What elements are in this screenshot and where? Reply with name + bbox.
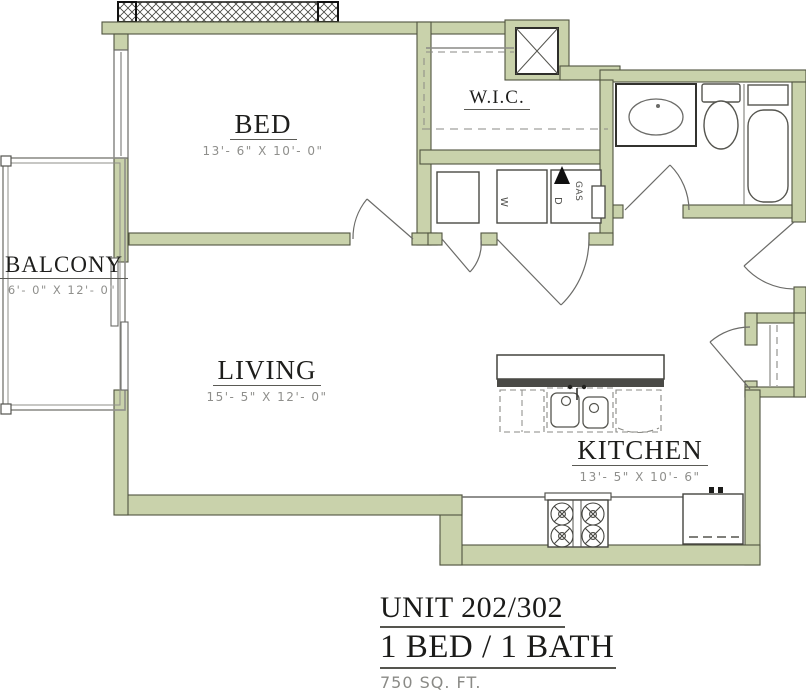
laundry-door-left [442, 239, 481, 272]
bed-room-dims: 13'- 6" X 10'- 0" [183, 144, 343, 158]
unit-number-line: UNIT 202/302 [380, 591, 616, 628]
toilet [702, 84, 740, 149]
kitchen-sink [547, 385, 613, 432]
living-room-dims: 15'- 5" X 12'- 0" [187, 390, 347, 404]
bathroom-door [625, 165, 689, 210]
water-heater-box [437, 172, 479, 223]
title-block: UNIT 202/302 1 BED / 1 BATH 750 SQ. FT. [380, 591, 616, 692]
balcony-room-dims: 6'- 0" X 12'- 0" [0, 283, 124, 297]
washer-label: W [498, 197, 509, 207]
dishwasher [616, 390, 661, 433]
dryer-label: D [552, 197, 563, 205]
vanity-sink [616, 84, 696, 146]
laundry-door-right [497, 239, 589, 305]
floor-plan: BED 13'- 6" X 10'- 0" W.I.C. BALCONY 6'-… [0, 0, 806, 697]
bathroom-niche [748, 85, 788, 105]
entry-closet [770, 325, 777, 386]
kitchen-room-dims: 13'- 5" X 10'- 6" [560, 470, 720, 484]
bed-bath-line: 1 BED / 1 BATH [380, 629, 616, 669]
bed-room-name: BED [230, 110, 297, 140]
balcony-room-label: BALCONY 6'- 0" X 12'- 0" [0, 253, 124, 297]
range [545, 493, 611, 547]
kitchen-room-name: KITCHEN [572, 436, 707, 466]
gas-label: GAS [573, 181, 583, 201]
entry-door [744, 222, 794, 289]
bed-window [114, 50, 128, 158]
wic-room-name: W.I.C. [464, 88, 529, 110]
bed-room-label: BED 13'- 6" X 10'- 0" [183, 110, 343, 158]
wic-room-label: W.I.C. [437, 88, 557, 110]
hatched-wall [118, 2, 338, 22]
bed-bath-count: 1 BED / 1 BATH [380, 629, 616, 669]
kitchen-room-label: KITCHEN 13'- 5" X 10'- 6" [560, 436, 720, 484]
living-room-name: LIVING [213, 356, 322, 386]
balcony-room-name: BALCONY [0, 253, 128, 279]
living-room-label: LIVING 15'- 5" X 12'- 0" [187, 356, 347, 404]
shaft-marker [516, 28, 558, 74]
square-footage: 750 SQ. FT. [380, 673, 616, 692]
refrigerator [683, 487, 743, 544]
bed-door [353, 199, 413, 239]
closet-door [710, 327, 750, 389]
unit-number: UNIT 202/302 [380, 591, 565, 628]
gas-meter [592, 186, 605, 218]
